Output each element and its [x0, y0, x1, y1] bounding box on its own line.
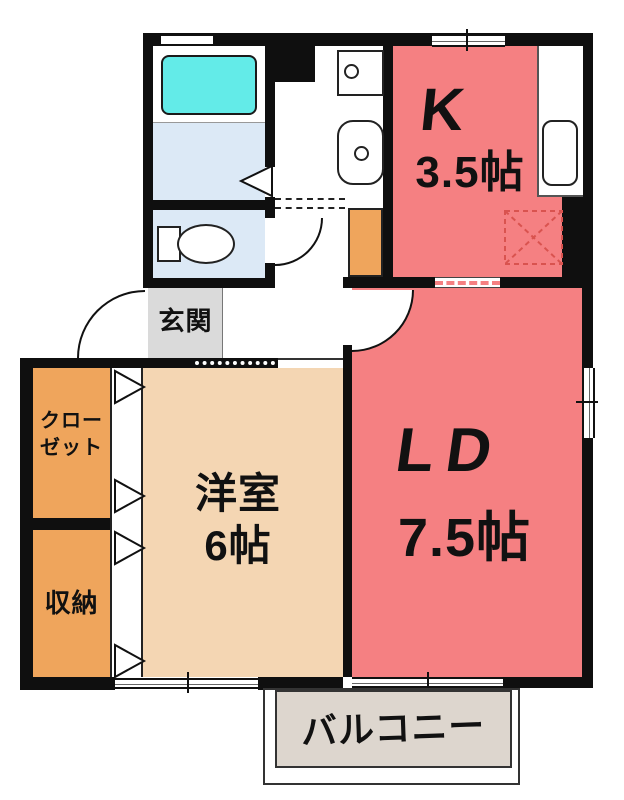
kitchen-window-tick [466, 29, 468, 51]
western-room-size-label: 6帖 [168, 524, 308, 568]
washroom-opening-dash-1 [275, 198, 345, 200]
western-room-label: 洋室 [168, 472, 308, 516]
closet-label-line2: ゼット [33, 435, 110, 462]
wall-ld-top-left [343, 277, 435, 288]
living-dining-size-label: 7.5帖 [367, 510, 562, 567]
washroom-opening-dash-2 [275, 207, 345, 209]
wall-ld-top-right [500, 277, 593, 288]
washing-machine-pan-icon [337, 50, 384, 96]
wall-ld-bottom [503, 677, 593, 688]
kitchen-size-label: 3.5帖 [385, 150, 555, 196]
washbasin-icon [337, 120, 384, 185]
storage-label: 収納 [33, 590, 110, 617]
wall-west-bottom-left [20, 677, 115, 690]
wall-closet-storage [20, 518, 110, 530]
kitchen-label: K [390, 78, 497, 141]
toilet-door-arc [275, 218, 323, 266]
closet-door-strip [110, 368, 143, 677]
wall-left-upper [143, 33, 153, 288]
ld-right-window-tick [576, 401, 598, 403]
kitchen-ld-sliding-door [435, 277, 500, 288]
bathroom-floor [153, 123, 265, 200]
bathtub-icon [161, 55, 257, 115]
entrance-door-arc [77, 290, 145, 358]
floor-plan: バルコニー K 3.5帖 LD 7.5帖 洋室 6帖 玄関 クロー ゼット 収納 [0, 0, 624, 800]
shoe-cabinet [348, 208, 383, 277]
passage-opening [278, 358, 343, 368]
living-dining-label: LD [375, 418, 524, 483]
ld-right-window [582, 368, 595, 438]
bathroom-window [161, 34, 213, 46]
closet-label: クロー ゼット [33, 408, 110, 462]
wall-bath-right-1 [265, 46, 275, 167]
wall-toilet-bottom [143, 278, 275, 288]
entrance-label: 玄関 [148, 308, 223, 335]
closet-label-line1: クロー [33, 408, 110, 435]
toilet-icon [155, 222, 239, 266]
kitchen-window [432, 34, 505, 47]
balcony-floor: バルコニー [275, 690, 512, 768]
balcony-label: バルコニー [301, 707, 486, 751]
western-room-window-tick [187, 672, 189, 693]
wall-ld-right [582, 288, 593, 677]
wall-ld-left [343, 345, 352, 677]
wall-kitchen-corner [562, 197, 593, 277]
sliding-door-dotted-mark [195, 361, 275, 365]
wall-bath-toilet [143, 200, 275, 210]
